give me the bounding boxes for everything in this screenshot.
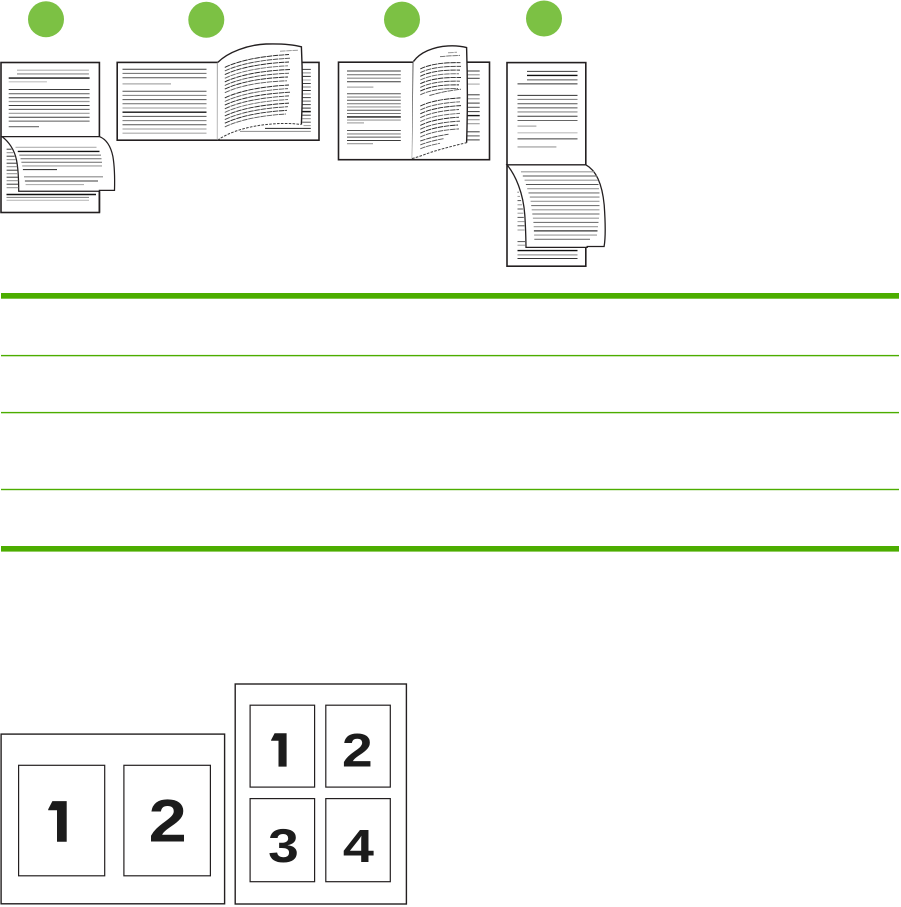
svg-text:3: 3 xyxy=(268,819,299,872)
svg-text:2: 2 xyxy=(342,723,373,777)
svg-text:2: 2 xyxy=(149,788,187,855)
svg-text:4: 4 xyxy=(343,820,375,872)
